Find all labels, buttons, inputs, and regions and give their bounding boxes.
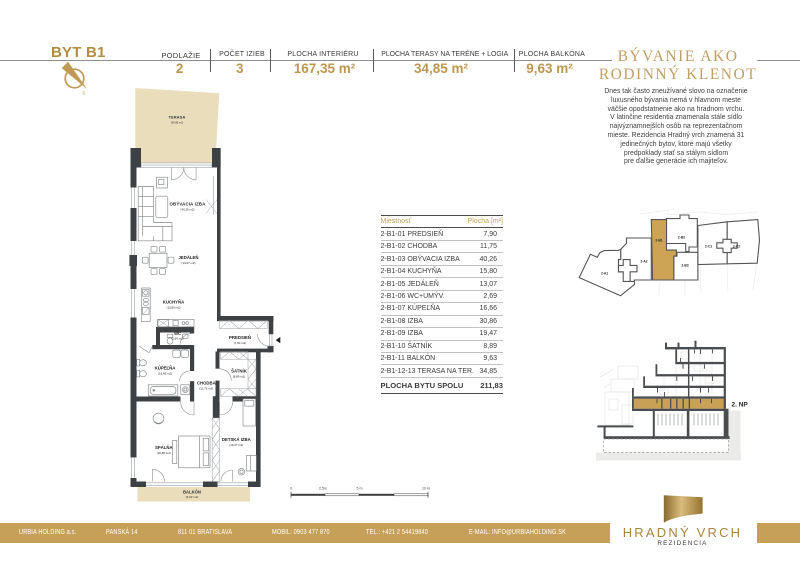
svg-text:(11,75 m2): (11,75 m2) bbox=[199, 387, 213, 391]
svg-text:TERASA: TERASA bbox=[169, 116, 186, 120]
svg-text:2-B2: 2-B2 bbox=[678, 236, 685, 240]
svg-text:2-B3: 2-B3 bbox=[681, 264, 688, 268]
svg-text:(7,90 m2): (7,90 m2) bbox=[234, 341, 246, 345]
svg-text:2-A1: 2-A1 bbox=[601, 272, 608, 276]
svg-text:DETSKÁ IZBA: DETSKÁ IZBA bbox=[222, 437, 251, 442]
svg-text:(15,80 m2): (15,80 m2) bbox=[167, 306, 181, 310]
svg-text:(34,85 m2): (34,85 m2) bbox=[171, 121, 184, 125]
svg-text:(30,86 m2): (30,86 m2) bbox=[157, 451, 171, 455]
svg-text:(2,69 m2): (2,69 m2) bbox=[171, 336, 183, 340]
svg-text:(9,63 m2): (9,63 m2) bbox=[186, 495, 199, 499]
svg-text:CHODBA: CHODBA bbox=[197, 381, 216, 386]
svg-text:JEDÁLEŇ: JEDÁLEŇ bbox=[178, 255, 198, 260]
svg-text:WC: WC bbox=[174, 331, 181, 336]
svg-text:S: S bbox=[82, 91, 85, 97]
svg-text:0: 0 bbox=[290, 487, 292, 491]
svg-text:2. NP: 2. NP bbox=[732, 402, 749, 409]
svg-text:KUCHYŇA: KUCHYŇA bbox=[163, 300, 185, 305]
svg-text:2-B1: 2-B1 bbox=[655, 239, 662, 243]
svg-text:SPÁLŇA: SPÁLŇA bbox=[155, 445, 173, 450]
svg-text:2-C1: 2-C1 bbox=[705, 245, 712, 249]
svg-text:OBÝVACIA IZBA: OBÝVACIA IZBA bbox=[169, 202, 205, 207]
svg-text:(19,47 m2): (19,47 m2) bbox=[229, 443, 243, 447]
svg-text:(40,26 m2): (40,26 m2) bbox=[181, 208, 195, 212]
svg-text:BALKÓN: BALKÓN bbox=[183, 490, 201, 495]
svg-text:PREDSIEŇ: PREDSIEŇ bbox=[229, 335, 251, 340]
svg-text:2-C2: 2-C2 bbox=[733, 245, 740, 249]
svg-text:(8,89 m2): (8,89 m2) bbox=[233, 375, 245, 379]
svg-text:(13,07 m2): (13,07 m2) bbox=[182, 261, 196, 265]
svg-text:10 m: 10 m bbox=[422, 487, 430, 491]
svg-text:5 m: 5 m bbox=[357, 487, 363, 491]
svg-text:2,5m: 2,5m bbox=[319, 487, 327, 491]
svg-text:ŠATNÍK: ŠATNÍK bbox=[231, 369, 248, 374]
svg-text:2-A2: 2-A2 bbox=[640, 260, 647, 264]
svg-text:(16,66 m2): (16,66 m2) bbox=[158, 372, 172, 376]
svg-text:KÚPEĽŇA: KÚPEĽŇA bbox=[155, 366, 176, 371]
